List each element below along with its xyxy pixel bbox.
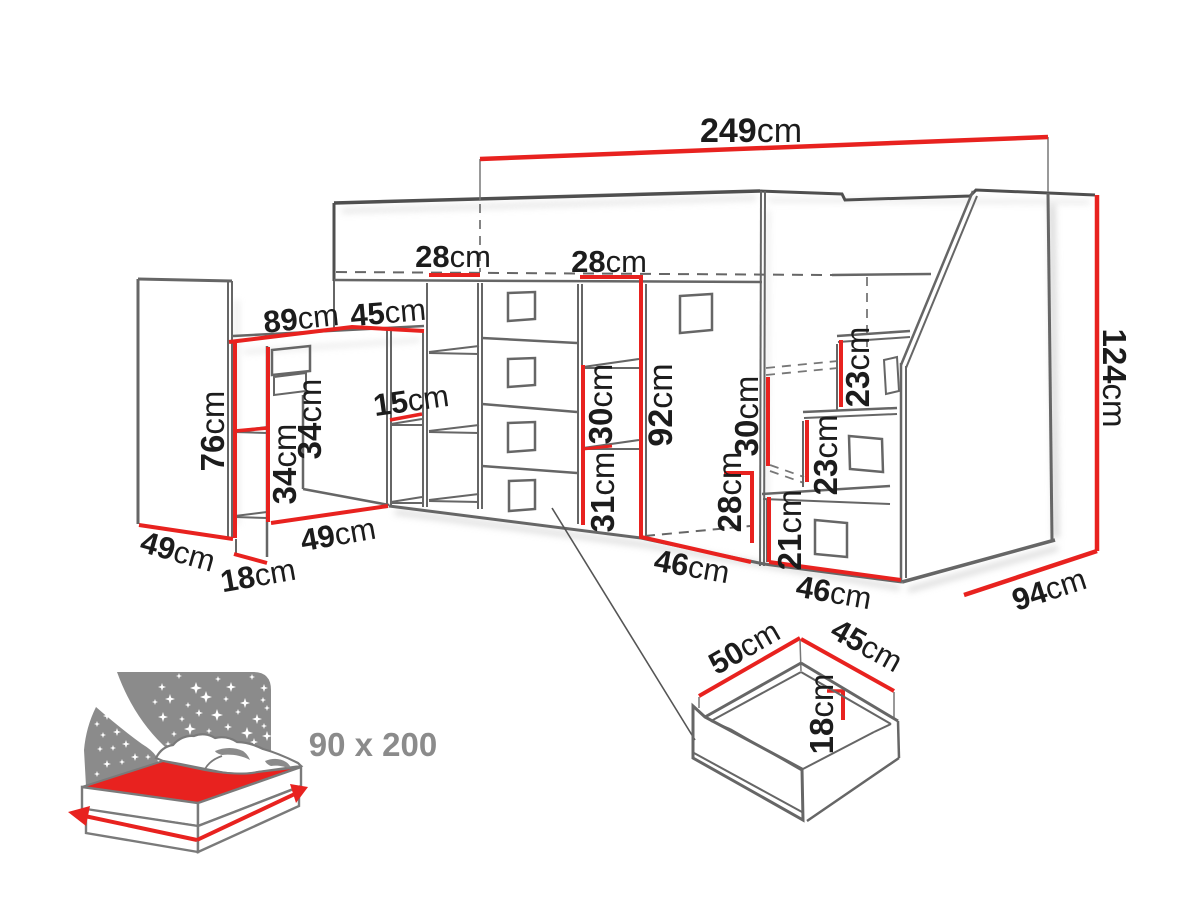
- svg-text:90 x 200: 90 x 200: [309, 726, 437, 763]
- svg-text:28cm: 28cm: [571, 244, 647, 279]
- svg-text:23cm: 23cm: [807, 415, 844, 496]
- svg-text:28cm: 28cm: [415, 239, 491, 274]
- svg-text:76cm: 76cm: [194, 391, 231, 472]
- svg-text:92cm: 92cm: [642, 363, 680, 446]
- svg-text:249cm: 249cm: [700, 112, 802, 150]
- svg-text:21cm: 21cm: [771, 490, 808, 571]
- svg-text:28cm: 28cm: [711, 452, 748, 533]
- svg-text:23cm: 23cm: [839, 327, 876, 408]
- svg-text:18cm: 18cm: [803, 674, 840, 755]
- svg-text:30cm: 30cm: [728, 376, 765, 457]
- svg-text:31cm: 31cm: [584, 452, 621, 533]
- svg-text:34cm: 34cm: [266, 424, 303, 505]
- svg-text:124cm: 124cm: [1096, 328, 1133, 427]
- svg-text:45cm: 45cm: [349, 292, 428, 333]
- svg-text:30cm: 30cm: [582, 364, 619, 445]
